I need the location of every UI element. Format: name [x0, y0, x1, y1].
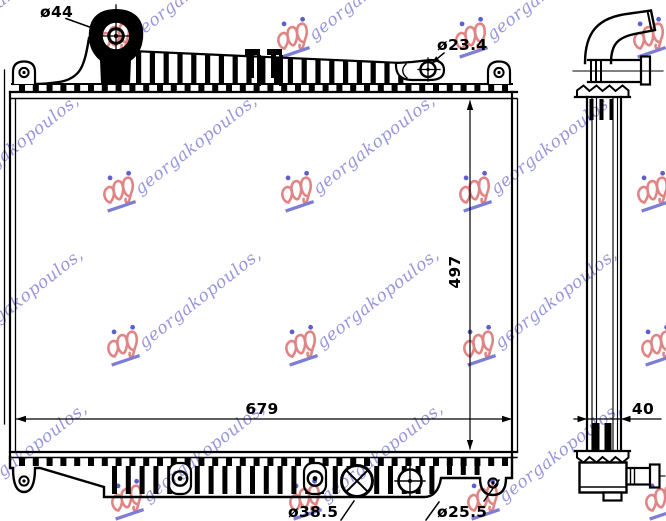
crimp-tooth	[488, 458, 494, 466]
dim-label-depth: 40	[632, 400, 654, 418]
crimp-tooth	[19, 84, 25, 92]
crimp-tooth	[143, 458, 149, 466]
fin-bar	[447, 466, 452, 475]
fin-bar	[136, 51, 141, 84]
crimp-tooth	[212, 458, 218, 466]
dim-label-width: 679	[245, 400, 278, 418]
radiator-technical-drawing: ø44 ø23.4 679 497 40 ø38.5 ø25.5	[0, 0, 666, 521]
fin-bar	[461, 466, 466, 475]
crimp-tooth	[226, 458, 232, 466]
crimp-tooth	[254, 458, 260, 466]
dim-label-drain: ø38.5	[288, 503, 338, 521]
crimp-tooth	[405, 84, 411, 92]
crimp-tooth	[461, 458, 467, 466]
fin-bar	[150, 52, 155, 84]
crimp-tooth	[267, 84, 273, 92]
fin-bar	[429, 466, 434, 494]
crimp-tooth	[433, 458, 439, 466]
fin-bar	[278, 466, 283, 494]
fin-bar	[315, 59, 320, 84]
crimp-tooth	[47, 458, 53, 466]
inlet-center	[426, 68, 429, 71]
crimp-tooth	[212, 84, 218, 92]
crimp-tooth	[488, 84, 494, 92]
fin-bar	[195, 466, 200, 494]
crimp-tooth	[157, 84, 163, 92]
fin-bar	[374, 466, 379, 494]
crimp-tooth	[364, 458, 370, 466]
side-bottom-pins	[593, 423, 612, 451]
top-right-bracket-pin	[497, 71, 500, 74]
dim-label-outlet: ø25.5	[437, 503, 487, 521]
radiator-front-view	[5, 5, 518, 497]
fin-bar	[191, 54, 196, 84]
fin-bar	[164, 52, 169, 84]
side-top-crimp	[577, 86, 629, 98]
dim-label-inlet: ø23.4	[437, 36, 487, 54]
top-crimp-teeth	[19, 84, 508, 92]
crimp-tooth	[74, 84, 80, 92]
crimp-tooth	[405, 458, 411, 466]
crimp-tooth	[502, 458, 508, 466]
fin-bar	[153, 466, 158, 494]
fin-bar	[475, 466, 480, 475]
crimp-tooth	[419, 458, 425, 466]
dim-label-neck: ø44	[40, 3, 73, 21]
crimp-tooth	[60, 84, 66, 92]
dim-arrow-width-right	[502, 416, 512, 422]
fin-bar	[302, 59, 307, 84]
fin-bar	[236, 466, 241, 494]
filler-neck	[90, 5, 142, 84]
crimp-tooth	[33, 458, 39, 466]
dim-arrow-height-bottom	[467, 440, 473, 450]
crimp-tooth	[461, 84, 467, 92]
dim-arrow-depth-right	[621, 416, 631, 422]
crimp-tooth	[392, 84, 398, 92]
crimp-tooth	[102, 84, 108, 92]
dim-arrow-height-top	[467, 100, 473, 110]
crimp-tooth	[60, 458, 66, 466]
radiator-side-view	[573, 11, 665, 501]
crimp-tooth	[336, 458, 342, 466]
crimp-tooth	[88, 84, 94, 92]
fin-bar	[384, 62, 389, 84]
fin-bar	[140, 466, 145, 494]
side-bottom-tank	[580, 463, 627, 493]
upper-hose-elbow	[585, 11, 655, 64]
fin-bar	[205, 54, 210, 84]
crimp-tooth	[295, 458, 301, 466]
crimp-tooth	[447, 84, 453, 92]
fin-bar	[112, 466, 117, 494]
fin-bar	[329, 60, 334, 84]
crimp-tooth	[185, 84, 191, 92]
crimp-tooth	[88, 458, 94, 466]
fin-bar	[264, 466, 269, 494]
crimp-tooth	[378, 458, 384, 466]
dim-arrow-depth-left	[578, 416, 588, 422]
crimp-tooth	[474, 458, 480, 466]
fin-bar	[209, 466, 214, 494]
fin-bar	[371, 62, 376, 84]
crimp-tooth	[102, 458, 108, 466]
top-left-bracket-pin	[22, 71, 25, 74]
bottom-right-bracket-pin	[491, 481, 494, 484]
bottom-tank-fins	[112, 466, 480, 494]
crimp-tooth	[336, 84, 342, 92]
crimp-tooth	[323, 84, 329, 92]
crimp-tooth	[33, 84, 39, 92]
crimp-tooth	[198, 84, 204, 92]
top-tank-edge	[131, 51, 402, 63]
fin-bar	[291, 466, 296, 494]
crimp-tooth	[143, 84, 149, 92]
crimp-tooth	[350, 84, 356, 92]
crimp-tooth	[378, 84, 384, 92]
crimp-tooth	[19, 458, 25, 466]
dim-arrow-width-left	[16, 416, 26, 422]
crimp-tooth	[198, 458, 204, 466]
fin-bar	[219, 55, 224, 84]
crimp-tooth	[240, 84, 246, 92]
dim-label-height: 497	[446, 255, 464, 288]
fin-bar	[250, 466, 255, 494]
crimp-tooth	[433, 84, 439, 92]
fin-bar	[357, 61, 362, 84]
crimp-tooth	[267, 458, 273, 466]
bottom-left-bracket-pin	[22, 479, 25, 482]
side-foot-tab	[604, 493, 622, 501]
bottom-tab-left-pin	[178, 476, 183, 481]
crimp-tooth	[392, 458, 398, 466]
leader-drain	[341, 501, 354, 520]
drain-plug	[342, 466, 373, 497]
crimp-tooth	[116, 84, 122, 92]
crimp-tooth	[474, 84, 480, 92]
fin-bar	[222, 466, 227, 494]
crimp-tooth	[240, 458, 246, 466]
crimp-tooth	[74, 458, 80, 466]
crimp-tooth	[309, 84, 315, 92]
crimp-tooth	[47, 84, 53, 92]
bottom-crimp-teeth	[19, 458, 508, 466]
fin-bar	[233, 56, 238, 84]
bottom-mounting-tabs	[169, 463, 326, 494]
crimp-tooth	[129, 458, 135, 466]
outlet-center	[408, 479, 412, 483]
crimp-tooth	[226, 84, 232, 92]
crimp-tooth	[364, 84, 370, 92]
fin-bar	[388, 466, 393, 494]
crimp-tooth	[281, 458, 287, 466]
crimp-tooth	[502, 84, 508, 92]
crimp-tooth	[116, 458, 122, 466]
drawing-canvas: ø44 ø23.4 679 497 40 ø38.5 ø25.5 georgak…	[0, 0, 666, 521]
fin-bar	[177, 53, 182, 84]
side-top-pins	[590, 99, 614, 120]
side-bottom-crimp	[577, 451, 629, 463]
side-outlet-cap	[650, 465, 660, 488]
bottom-tab-right-pin	[313, 476, 318, 481]
top-tank-left-contour	[37, 38, 89, 84]
crimp-tooth	[447, 458, 453, 466]
fin-bar	[343, 60, 348, 84]
crimp-tooth	[171, 84, 177, 92]
fin-bar	[288, 58, 293, 84]
crimp-tooth	[419, 84, 425, 92]
crimp-tooth	[157, 458, 163, 466]
fin-bar	[126, 466, 131, 494]
crimp-tooth	[129, 84, 135, 92]
crimp-tooth	[295, 84, 301, 92]
fin-bar	[333, 466, 338, 494]
